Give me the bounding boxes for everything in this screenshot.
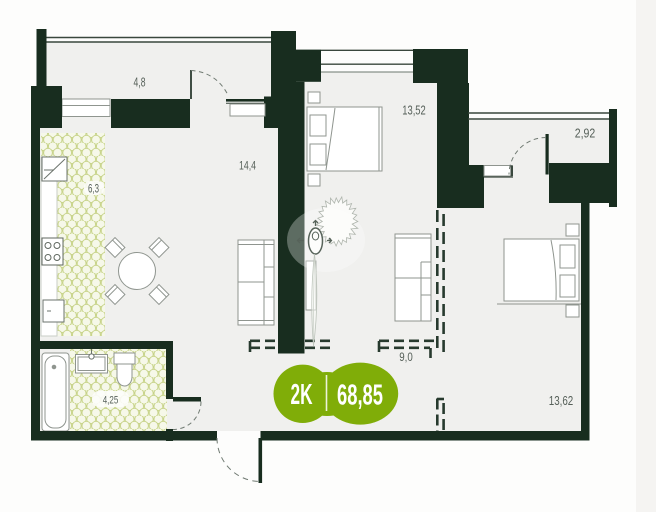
- svg-text:9,0: 9,0: [399, 350, 413, 364]
- svg-text:4,8: 4,8: [134, 75, 146, 90]
- svg-text:6,3: 6,3: [88, 182, 99, 196]
- svg-text:13,62: 13,62: [549, 393, 574, 408]
- svg-text:4,25: 4,25: [103, 395, 119, 407]
- svg-text:68,85: 68,85: [337, 380, 383, 412]
- svg-text:2K: 2K: [291, 379, 313, 411]
- svg-text:2,92: 2,92: [575, 126, 596, 141]
- svg-text:14,4: 14,4: [239, 159, 256, 173]
- svg-text:13,52: 13,52: [402, 103, 426, 118]
